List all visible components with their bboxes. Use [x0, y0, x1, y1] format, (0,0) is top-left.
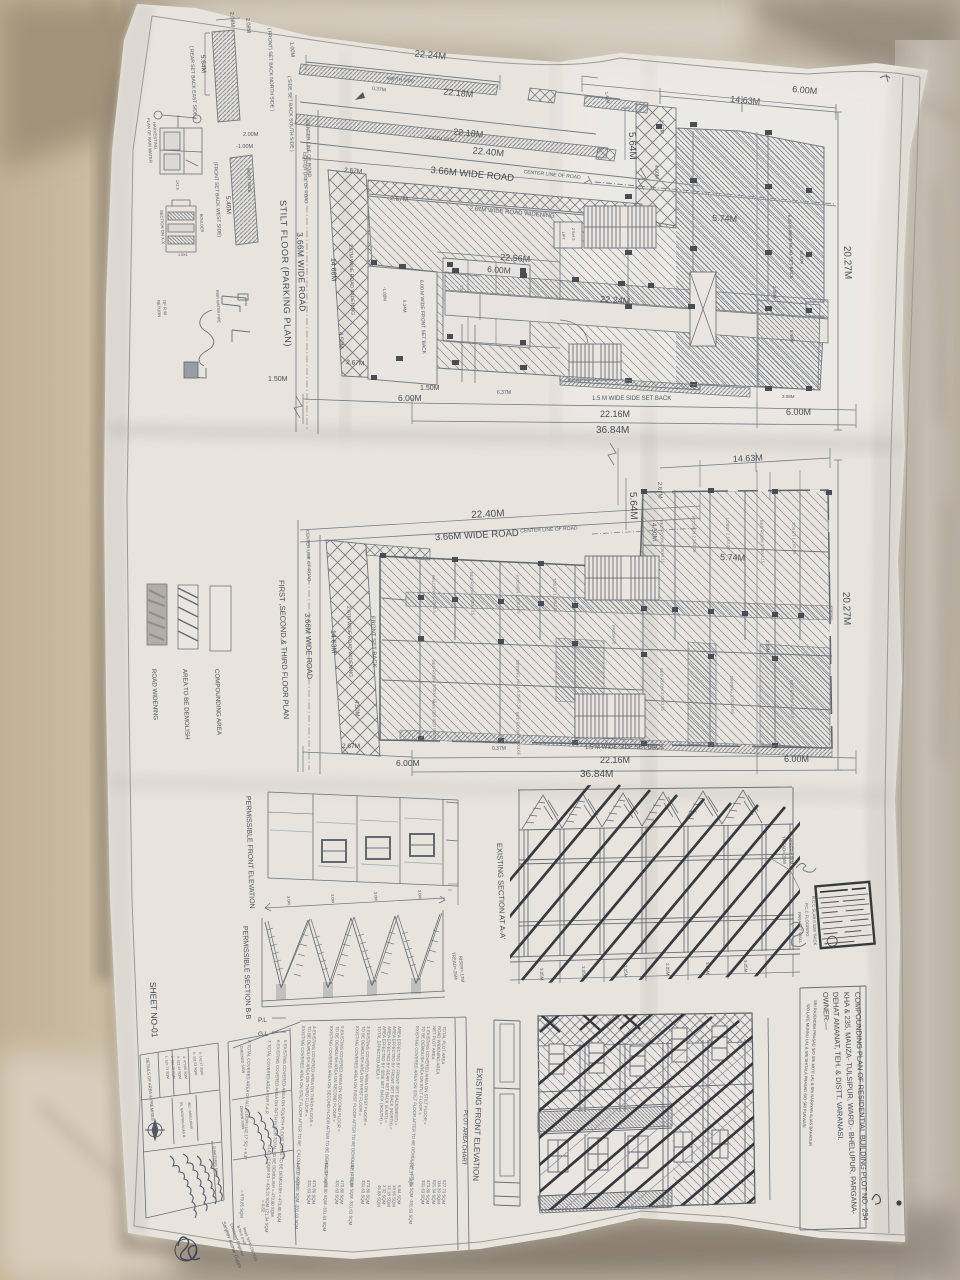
svg-text:=142.17 SQM: =142.17 SQM — [408, 1160, 414, 1187]
svg-text:14.63M: 14.63M — [733, 452, 764, 464]
svg-text:PASSAGE: PASSAGE — [611, 625, 617, 645]
svg-text:6.00M: 6.00M — [487, 264, 511, 276]
svg-text:-1.00M: -1.00M — [236, 144, 254, 150]
svg-text:18.33M: 18.33M — [799, 250, 805, 265]
svg-text:-1.00M: -1.00M — [382, 287, 387, 301]
svg-text:6.00M: 6.00M — [396, 758, 420, 768]
svg-text:6.00M: 6.00M — [784, 754, 809, 764]
svg-text:RETURN: RETURN — [156, 300, 162, 318]
svg-text:= 0.82: = 0.82 — [261, 1200, 266, 1213]
svg-text:2.00M: 2.00M — [243, 132, 259, 138]
svg-text:20.27M: 20.27M — [840, 592, 852, 626]
svg-text:LIFT: LIFT — [561, 232, 565, 241]
svg-text:1.50M: 1.50M — [268, 376, 288, 383]
svg-text:3.05M: 3.05M — [743, 960, 748, 973]
svg-text:22.40M: 22.40M — [471, 508, 505, 521]
svg-text:1.50M: 1.50M — [420, 385, 440, 392]
svg-text:521.34 SQM: 521.34 SQM — [431, 1180, 437, 1205]
svg-text:36.84M: 36.84M — [596, 425, 629, 436]
svg-text:331.63 SQM: 331.63 SQM — [334, 1180, 340, 1205]
svg-text:22.56M: 22.56M — [500, 252, 531, 264]
svg-text:1.5 M WIDE SIDE SET BACK: 1.5 M WIDE SIDE SET BACK — [585, 745, 664, 751]
svg-text:6.00M: 6.00M — [398, 393, 422, 403]
svg-text:= 579.85 SQM: = 579.85 SQM — [239, 1190, 245, 1218]
svg-text:14.68M: 14.68M — [329, 258, 337, 282]
svg-text:3.0M: 3.0M — [417, 890, 423, 899]
svg-text:2.5x4.5: 2.5x4.5 — [571, 228, 575, 241]
svg-text:331.63 SQM: 331.63 SQM — [306, 1180, 312, 1205]
svg-text:=142.17 SQM: =142.17 SQM — [323, 1160, 329, 1187]
svg-text:=142.17 SQM: =142.17 SQM — [295, 1160, 301, 1187]
svg-text:5.74M: 5.74M — [720, 552, 745, 563]
svg-text:4.60M: 4.60M — [653, 165, 659, 179]
svg-text:22.16M: 22.16M — [600, 755, 630, 765]
svg-text:3.0M: 3.0M — [330, 894, 336, 903]
svg-text:331.63 SQM: 331.63 SQM — [420, 1180, 426, 1205]
svg-text:6.37M: 6.37M — [497, 390, 511, 396]
svg-text:0.37M: 0.37M — [492, 746, 506, 752]
svg-text:3.05M: 3.05M — [665, 963, 670, 976]
svg-text:1.5X1: 1.5X1 — [178, 253, 188, 257]
svg-text:5.49M: 5.49M — [789, 330, 794, 343]
svg-text:331.63 SQM: 331.63 SQM — [360, 1180, 366, 1205]
svg-text:2.67M: 2.67M — [658, 120, 664, 134]
svg-text:=142.17 SQM: =142.17 SQM — [349, 1160, 355, 1187]
svg-text:3.0M: 3.0M — [286, 896, 292, 905]
svg-text:1.5 M WIDE SIDE SET BACK: 1.5 M WIDE SIDE SET BACK — [592, 396, 671, 402]
svg-text:3.05M: 3.05M — [539, 968, 544, 981]
svg-text:5.46M: 5.46M — [224, 196, 232, 214]
svg-text:3.0M: 3.0M — [373, 892, 379, 901]
svg-text:2.08M: 2.08M — [765, 640, 770, 653]
svg-text:2.08M: 2.08M — [782, 394, 795, 399]
svg-text:14.63M: 14.63M — [329, 630, 337, 654]
svg-text:P.L: P.L — [258, 1017, 267, 1024]
svg-text:4.50M: 4.50M — [353, 700, 360, 717]
svg-text:OWNER:—: OWNER:— — [821, 992, 831, 1031]
svg-text:4.50M: 4.50M — [337, 332, 344, 349]
svg-text:20.27M: 20.27M — [841, 246, 853, 280]
svg-text:2.67M: 2.67M — [342, 743, 360, 750]
svg-text:5.64M: 5.64M — [627, 492, 639, 520]
svg-text:6.00M: 6.00M — [786, 407, 811, 417]
svg-text:45.88 SQM: 45.88 SQM — [376, 1185, 382, 1207]
svg-text:SHEET NO-01: SHEET NO-01 — [148, 982, 160, 1038]
svg-text:36.84M: 36.84M — [580, 769, 613, 780]
svg-text:5.34M: 5.34M — [402, 300, 407, 313]
svg-text:22.16M: 22.16M — [600, 409, 630, 419]
svg-text:2.08M: 2.08M — [772, 286, 777, 299]
svg-text:5.64M: 5.64M — [199, 55, 207, 73]
svg-text:OF R.W: OF R.W — [162, 300, 168, 315]
svg-text:5.64M: 5.64M — [626, 132, 638, 160]
svg-text:RISER=.17M: RISER=.17M — [788, 838, 794, 865]
svg-text:5.74M: 5.74M — [712, 213, 737, 224]
svg-text:1X1.5: 1X1.5 — [175, 180, 180, 190]
